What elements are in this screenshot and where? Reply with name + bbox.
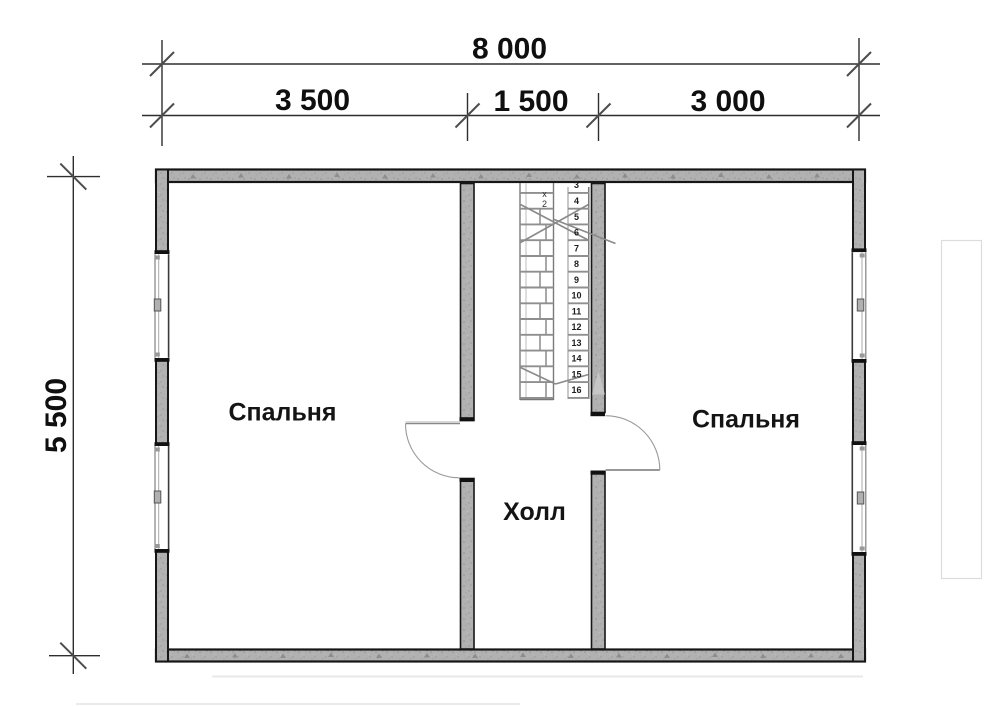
svg-text:Спальня: Спальня bbox=[692, 405, 800, 433]
svg-text:13: 13 bbox=[571, 338, 581, 348]
svg-text:3 000: 3 000 bbox=[690, 85, 765, 118]
svg-text:15: 15 bbox=[571, 369, 581, 379]
svg-text:3: 3 bbox=[574, 180, 579, 190]
svg-text:5: 5 bbox=[574, 212, 579, 222]
svg-text:8 000: 8 000 bbox=[472, 33, 547, 66]
svg-text:6: 6 bbox=[574, 228, 579, 238]
svg-text:Холл: Холл bbox=[503, 498, 566, 526]
svg-text:Спальня: Спальня bbox=[229, 399, 337, 427]
svg-text:9: 9 bbox=[574, 275, 579, 285]
svg-text:х: х bbox=[542, 189, 547, 199]
svg-text:7: 7 bbox=[574, 243, 579, 253]
svg-text:11: 11 bbox=[572, 306, 582, 316]
svg-text:14: 14 bbox=[571, 354, 581, 364]
svg-text:3 500: 3 500 bbox=[275, 84, 350, 117]
svg-text:1 500: 1 500 bbox=[493, 85, 568, 118]
svg-text:12: 12 bbox=[571, 322, 581, 332]
svg-text:16: 16 bbox=[571, 385, 581, 395]
svg-text:2: 2 bbox=[542, 199, 547, 209]
svg-text:5 500: 5 500 bbox=[40, 378, 73, 453]
svg-text:8: 8 bbox=[574, 259, 579, 269]
svg-text:10: 10 bbox=[571, 291, 581, 301]
svg-text:4: 4 bbox=[574, 196, 579, 206]
